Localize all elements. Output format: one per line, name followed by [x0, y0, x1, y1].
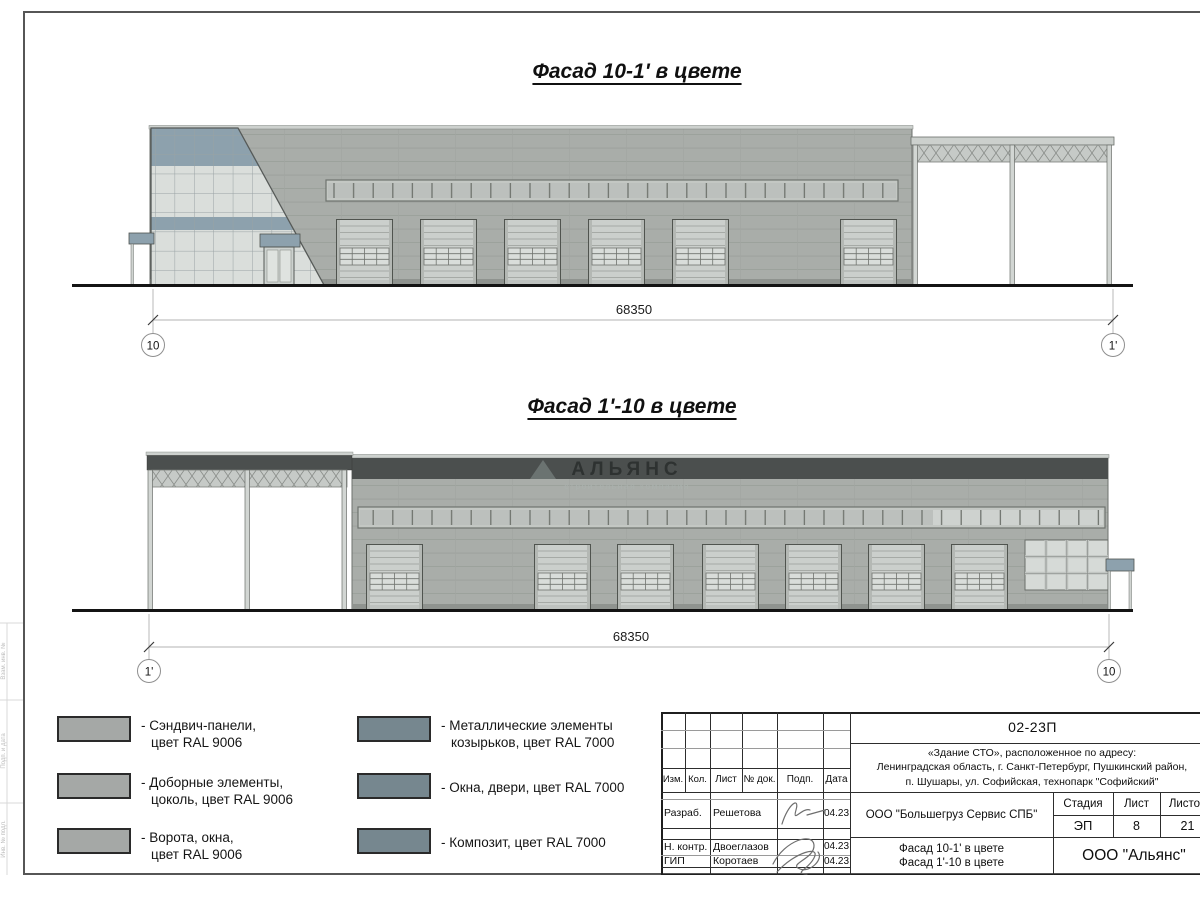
legend-swatch-gates — [57, 828, 131, 854]
legend-label: - Доборные элементы, — [141, 775, 283, 790]
watermark-tagline: строительная компания — [564, 481, 690, 491]
margin-label-inv: Инв. № подл. — [0, 820, 7, 858]
facade2-axis-right: 10 — [1103, 667, 1116, 679]
facade1-canopy — [911, 137, 1114, 285]
legend-label: - Сэндвич-панели, — [141, 718, 256, 733]
facade2-drawing: АЛЬЯНС строительная компания — [72, 452, 1134, 683]
legend-label: - Окна, двери, цвет RAL 7000 — [441, 780, 624, 795]
facade1-dimension-value: 68350 — [616, 302, 652, 317]
facade2-title: Фасад 1'-10 в цвете — [432, 395, 832, 419]
margin-label-vzam: Взам. инв. № — [0, 642, 7, 679]
legend-label: цоколь, цвет RAL 9006 — [151, 792, 293, 807]
facade2-canopy — [146, 452, 353, 610]
legend-swatch-canopy-metal — [357, 716, 431, 742]
legend-swatch-windows — [357, 773, 431, 799]
legend-label: - Ворота, окна, — [141, 830, 234, 845]
facade1-axis-right: 1' — [1109, 341, 1118, 353]
facade1-drawing: 68350 10 1' — [72, 126, 1133, 357]
signatures — [661, 712, 1200, 875]
legend-label: - Композит, цвет RAL 7000 — [441, 835, 606, 850]
facade2-dimension-value: 68350 — [613, 629, 649, 644]
facade2-axis-left: 1' — [145, 667, 154, 679]
drawing-sheet: { "facade1": { "title": "Фасад 10-1' в ц… — [0, 0, 1200, 900]
legend-label: цвет RAL 9006 — [151, 847, 242, 862]
legend-label: - Металлические элементы — [441, 718, 613, 733]
margin-label-podp: Подп. и дата — [1, 733, 7, 769]
facade1-title: Фасад 10-1' в цвете — [437, 60, 837, 84]
legend-swatch-sandwich — [57, 716, 131, 742]
facade2-dimension: 68350 1' 10 — [138, 614, 1121, 683]
facade1-axis-left: 10 — [147, 341, 160, 353]
legend-label: цвет RAL 9006 — [151, 735, 242, 750]
margin-table: Взам. инв. № Подп. и дата Инв. № подл. — [0, 623, 23, 875]
watermark-name: АЛЬЯНС — [571, 459, 682, 480]
legend-swatch-composite — [357, 828, 431, 854]
signature-gip — [773, 839, 819, 874]
legend-swatch-dobory — [57, 773, 131, 799]
facade1-dimension: 68350 10 1' — [142, 289, 1125, 357]
signature-razrab — [782, 803, 825, 824]
legend-label: козырьков, цвет RAL 7000 — [451, 735, 614, 750]
title-block: Изм. Кол. Лист № док. Подп. Дата Разраб.… — [661, 712, 1200, 875]
